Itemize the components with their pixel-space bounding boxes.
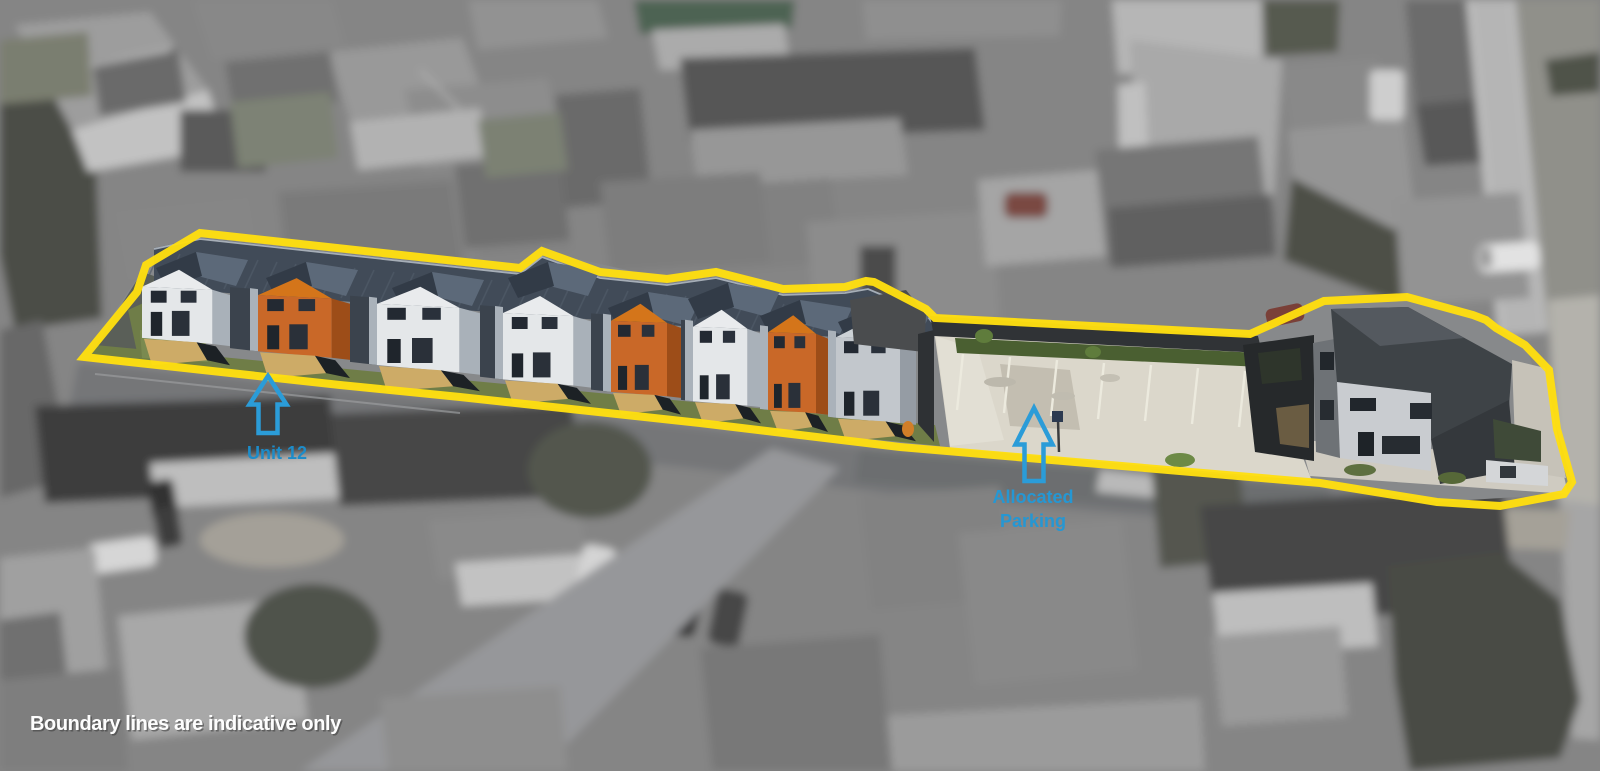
svg-text:Unit 12: Unit 12 [247, 443, 307, 463]
svg-text:Allocated: Allocated [992, 487, 1073, 507]
svg-text:Boundary lines are indicative: Boundary lines are indicative only [30, 713, 342, 735]
svg-text:Parking: Parking [1000, 511, 1066, 531]
